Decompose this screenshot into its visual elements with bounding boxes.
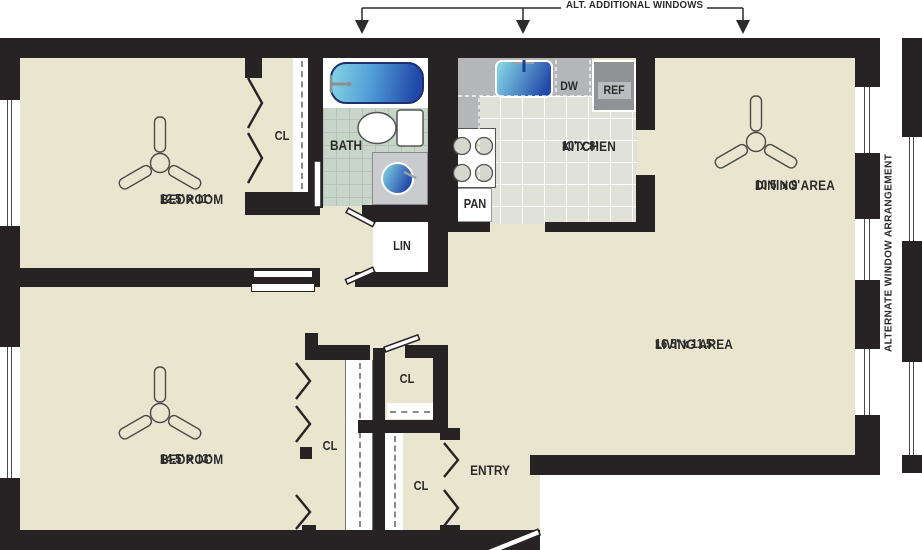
sliding-door-icon [251,283,315,292]
window [0,98,20,228]
closet-wall [302,525,316,535]
window [855,85,880,155]
pantry-label: PAN [464,197,486,211]
closet-track [385,433,403,530]
room-dims: 16.5' x 11.5' [655,337,715,352]
living-bottom-wall [530,455,880,475]
room-dims: 12.5' x 11' [160,192,211,207]
arrow-down-icon [355,20,369,34]
closet-label-bedroom-2: CL [323,439,338,453]
closet-track [387,403,433,419]
arrow-down-icon [516,20,530,34]
room-label-entry: ENTRY [470,463,510,478]
refrigerator-label: REF [603,83,624,97]
floor-plan: BEDROOM 12.5' x 11' BEDROOM 14.5' x 13' … [0,0,922,550]
bath-wall [308,58,323,208]
entry-closet-wall [440,428,460,440]
kitchen-sink-icon [495,60,553,98]
closet-wall [358,420,448,433]
bathtub-icon [330,62,424,104]
dishwasher-label: DW [560,79,578,93]
closet-wall [300,447,312,459]
kitchen-dining-wall [636,58,655,130]
closet-label-hall: CL [400,372,415,386]
closet-wall [245,58,262,78]
exterior-wall-top [0,38,880,58]
closet-wall [373,348,385,530]
room-dims: 10' x 8' [562,139,598,154]
arrow-down-icon [736,20,750,34]
sliding-door-icon [253,270,313,278]
entry-closet-wall [440,525,460,535]
room-label-bath: BATH [330,138,362,153]
alt-window-strip [902,457,922,473]
closet-shaft [345,360,373,530]
closet-label-bedroom-1: CL [275,129,290,143]
closet-track [293,58,308,192]
window [855,347,880,417]
linen-label: LIN [393,239,411,253]
alt-window-strip [902,243,922,360]
linen-wall [355,272,448,287]
kitchen-dining-wall [636,175,655,232]
room-dims: 10.5' x 9' [755,178,800,193]
window [855,217,880,282]
window [0,345,20,480]
alt-arrangement-annotation: ALTERNATE WINDOW ARRANGEMENT [879,38,899,468]
bath-sink-icon [381,162,414,195]
alt-windows-annotation: ALT. ADDITIONAL WINDOWS [566,0,703,11]
closet-label-entry: CL [414,479,429,493]
alt-window [902,360,922,457]
alt-window [902,135,922,243]
kitchen-wall [428,222,490,232]
closet-wall [305,345,370,360]
alt-window-strip [902,38,922,135]
room-dims: 14.5' x 13' [160,452,211,467]
